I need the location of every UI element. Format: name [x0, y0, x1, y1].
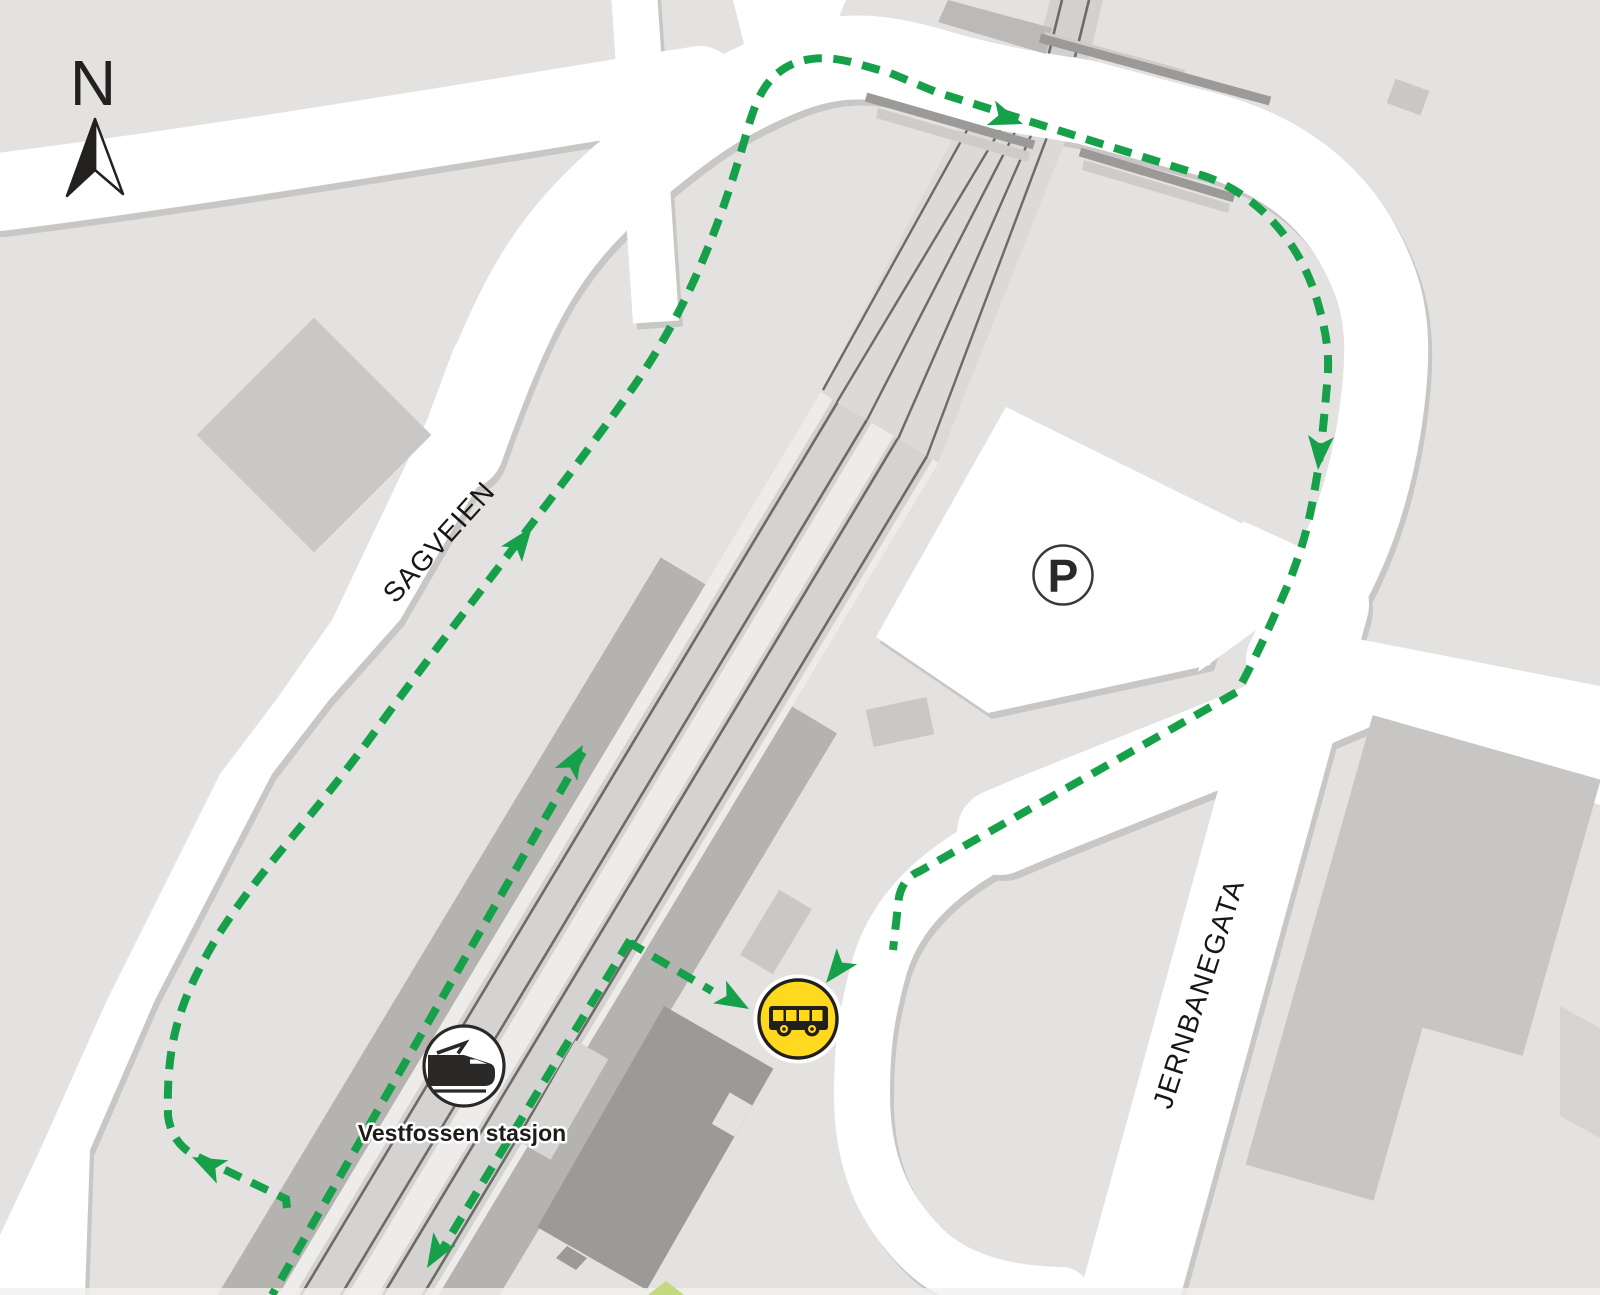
- svg-text:Vestfossen stasjon: Vestfossen stasjon: [358, 1120, 566, 1146]
- svg-text:N: N: [70, 47, 116, 119]
- svg-text:P: P: [1048, 550, 1079, 602]
